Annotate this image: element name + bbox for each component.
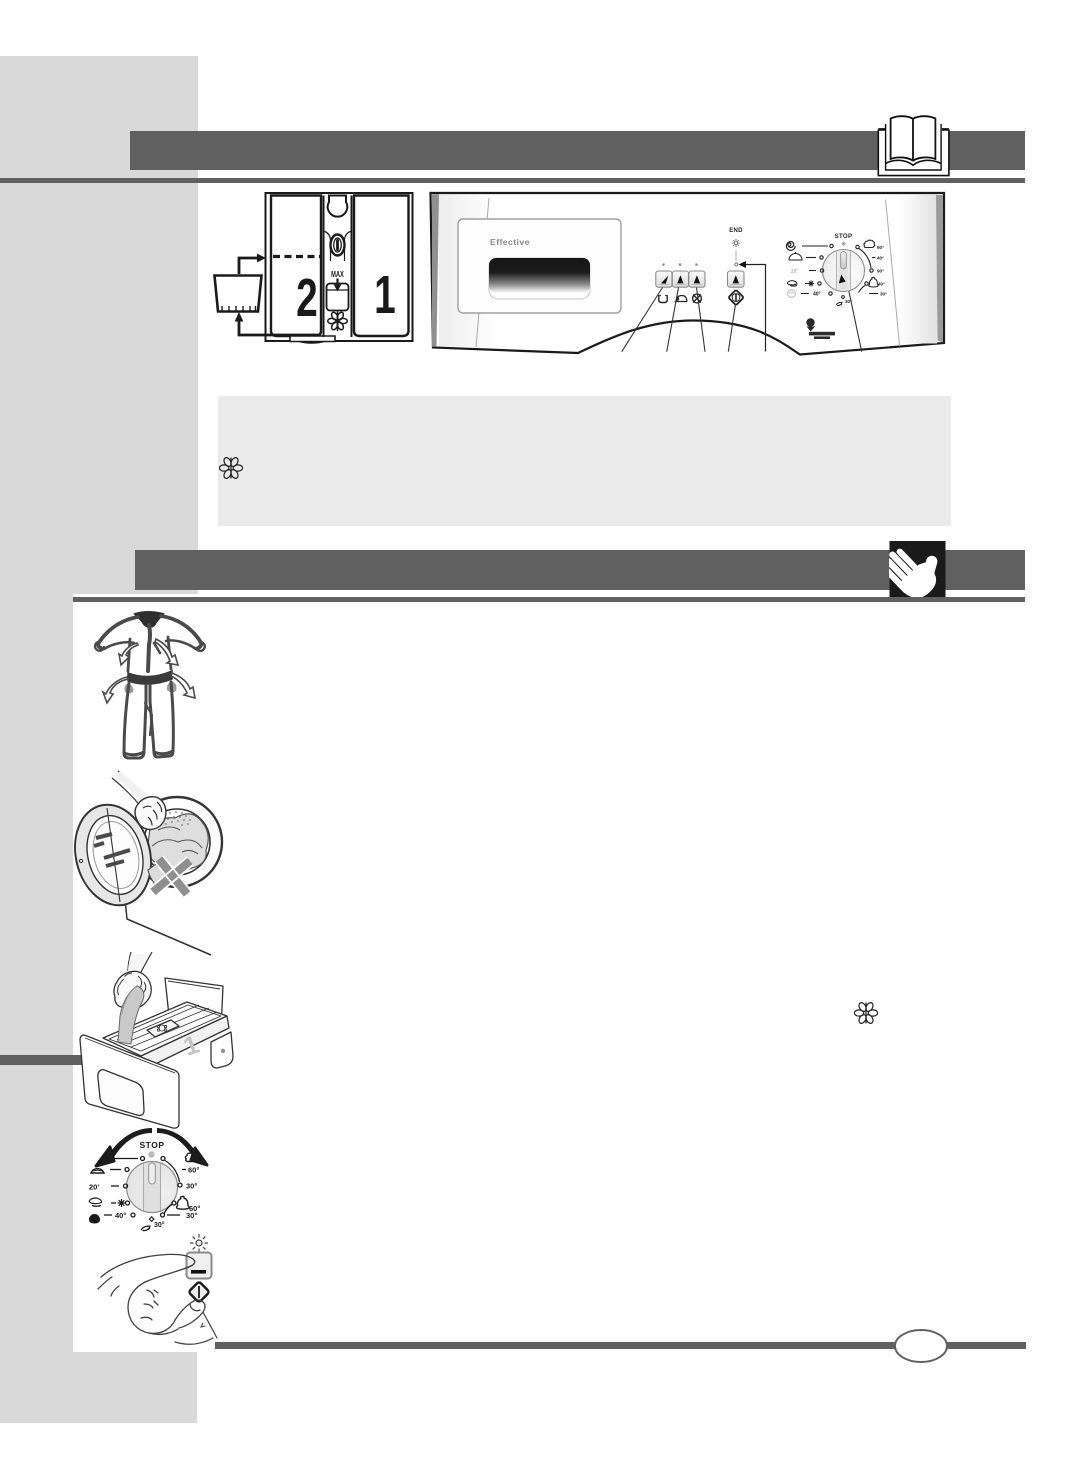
svg-text:90°: 90° [877, 269, 884, 274]
svg-text:30°: 30° [880, 292, 887, 297]
svg-text:1: 1 [374, 264, 396, 325]
svg-text:STOP: STOP [140, 1140, 165, 1150]
svg-text:Effective: Effective [490, 237, 530, 247]
svg-text:END: END [729, 228, 743, 234]
svg-text:20': 20' [791, 269, 798, 275]
svg-text:60°: 60° [188, 1166, 199, 1175]
svg-text:30°: 30° [186, 1182, 197, 1191]
svg-text:MAX: MAX [331, 271, 344, 279]
svg-text:STOP: STOP [835, 233, 853, 240]
svg-text:30°: 30° [186, 1211, 197, 1220]
svg-text:90°: 90° [877, 245, 884, 250]
svg-text:40°: 40° [813, 292, 821, 298]
svg-text:2: 2 [296, 267, 318, 328]
svg-text:30°: 30° [845, 299, 852, 304]
svg-text:40°: 40° [115, 1211, 126, 1220]
svg-text:40°: 40° [877, 256, 884, 261]
svg-text:40°: 40° [878, 282, 885, 287]
svg-text:20': 20' [89, 1183, 99, 1192]
